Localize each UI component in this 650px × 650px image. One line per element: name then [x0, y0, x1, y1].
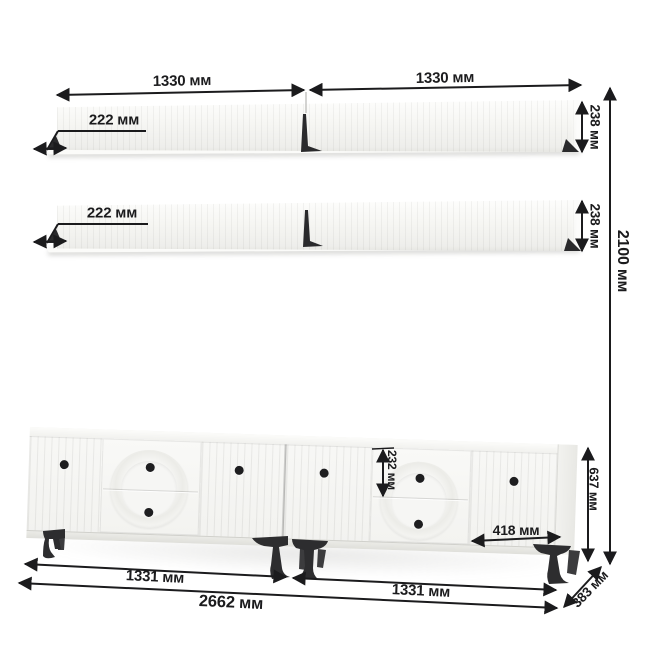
dim-label-door-width: 418 мм	[493, 522, 540, 538]
dim-label-shelf2-depth: 222 мм	[87, 205, 137, 222]
dim-label-shelf1-height: 238 мм	[588, 104, 603, 149]
dim-label-stand-width-right: 1331 мм	[391, 581, 450, 601]
dim-leader-shelf2-depth	[47, 224, 58, 243]
door-1	[27, 436, 105, 532]
door-3	[283, 444, 374, 541]
furniture-dimension-diagram: 1330 мм 1330 мм 222 мм 238 мм 222 мм 238…	[0, 0, 650, 650]
dim-label-shelf-width-right: 1330 мм	[416, 69, 475, 87]
dim-label-total-width: 2662 мм	[198, 592, 263, 614]
dim-label-shelf-width-left: 1330 мм	[153, 72, 212, 90]
dim-label-stand-width-left: 1331 мм	[125, 567, 184, 587]
dim-label-total-height: 2100 мм	[613, 230, 631, 292]
dim-leader-shelf1-depth	[47, 131, 58, 150]
dim-label-stand-height: 637 мм	[587, 467, 602, 510]
dim-line-shelf-width-left	[57, 90, 304, 95]
dim-label-shelf1-depth: 222 мм	[89, 112, 139, 129]
dim-label-shelf2-height: 238 мм	[588, 203, 603, 248]
dim-line-total-width	[19, 583, 557, 608]
stand-side-panel	[554, 444, 578, 553]
door-2	[199, 442, 287, 539]
dim-label-drawer-height: 232 мм	[385, 450, 399, 490]
